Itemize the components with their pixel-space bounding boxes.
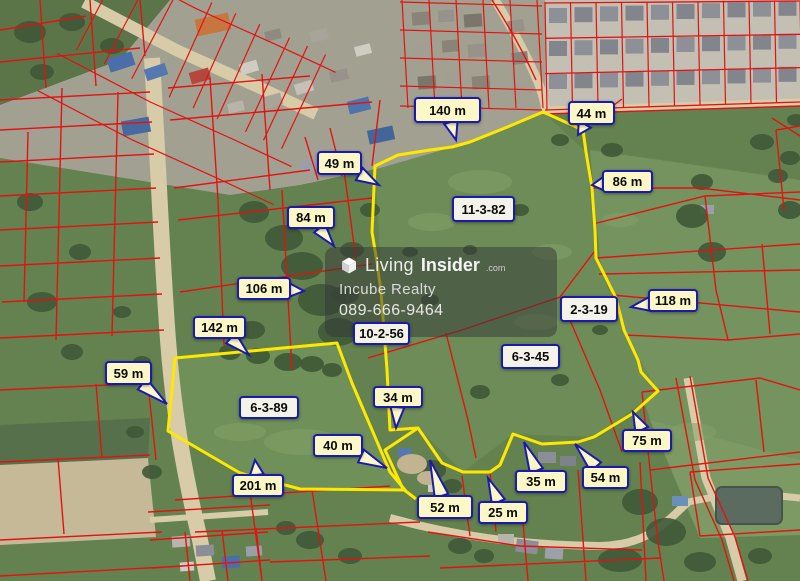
measurement-label: 86 m xyxy=(602,170,653,193)
measurement-label: 25 m xyxy=(478,501,528,524)
measurement-label: 142 m xyxy=(193,316,246,339)
measurement-label: 40 m xyxy=(313,434,363,457)
map-canvas: LivingInsider .com Incube Realty 089-666… xyxy=(0,0,800,581)
measurement-label: 35 m xyxy=(515,470,567,493)
area-label: 6-3-89 xyxy=(239,396,299,419)
measurement-label: 54 m xyxy=(582,466,629,489)
annotation-labels: 49 m140 m44 m86 m84 m106 m118 m142 m59 m… xyxy=(0,0,800,581)
measurement-label: 52 m xyxy=(417,495,473,519)
measurement-label: 49 m xyxy=(317,151,362,175)
area-label: 2-3-19 xyxy=(560,296,618,322)
measurement-label: 118 m xyxy=(648,289,698,312)
measurement-label: 59 m xyxy=(105,361,152,385)
measurement-label: 201 m xyxy=(232,474,284,497)
measurement-label: 34 m xyxy=(373,386,423,408)
area-label: 6-3-45 xyxy=(501,344,560,369)
measurement-label: 84 m xyxy=(287,206,335,229)
measurement-label: 106 m xyxy=(237,277,291,300)
measurement-label: 75 m xyxy=(622,429,672,452)
measurement-label: 140 m xyxy=(414,97,481,123)
area-label: 10-2-56 xyxy=(353,322,410,345)
area-label: 11-3-82 xyxy=(452,196,515,222)
measurement-label: 44 m xyxy=(568,101,615,125)
